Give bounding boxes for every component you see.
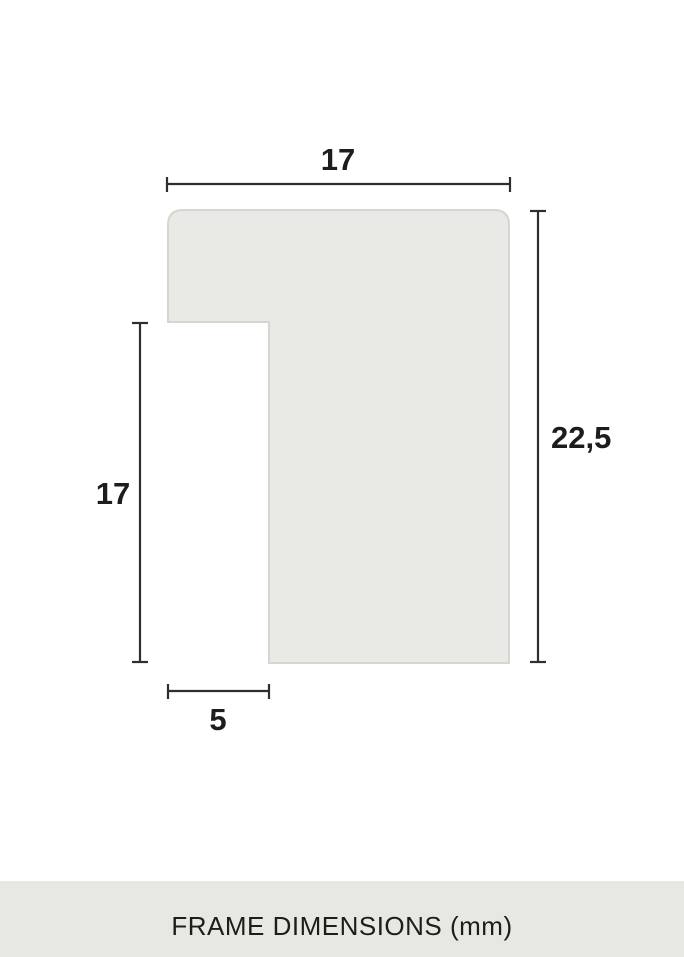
dimension-line-total-height [530,211,546,662]
dimension-label-bottom-width: 5 [209,702,226,737]
diagram-area: 17 22,5 17 5 [0,0,684,881]
frame-profile-shape [168,210,509,663]
frame-dimension-diagram: 17 22,5 17 5 [0,0,684,881]
footer-bar: FRAME DIMENSIONS (mm) [0,881,684,957]
dimension-line-left-height [132,323,148,662]
dimension-line-top-width [167,177,510,192]
dimension-line-bottom-width [168,684,269,699]
dimension-label-total-height: 22,5 [551,420,611,455]
dimension-label-left-height: 17 [96,476,130,511]
footer-caption: FRAME DIMENSIONS (mm) [171,911,512,942]
dimension-label-top-width: 17 [321,142,355,177]
